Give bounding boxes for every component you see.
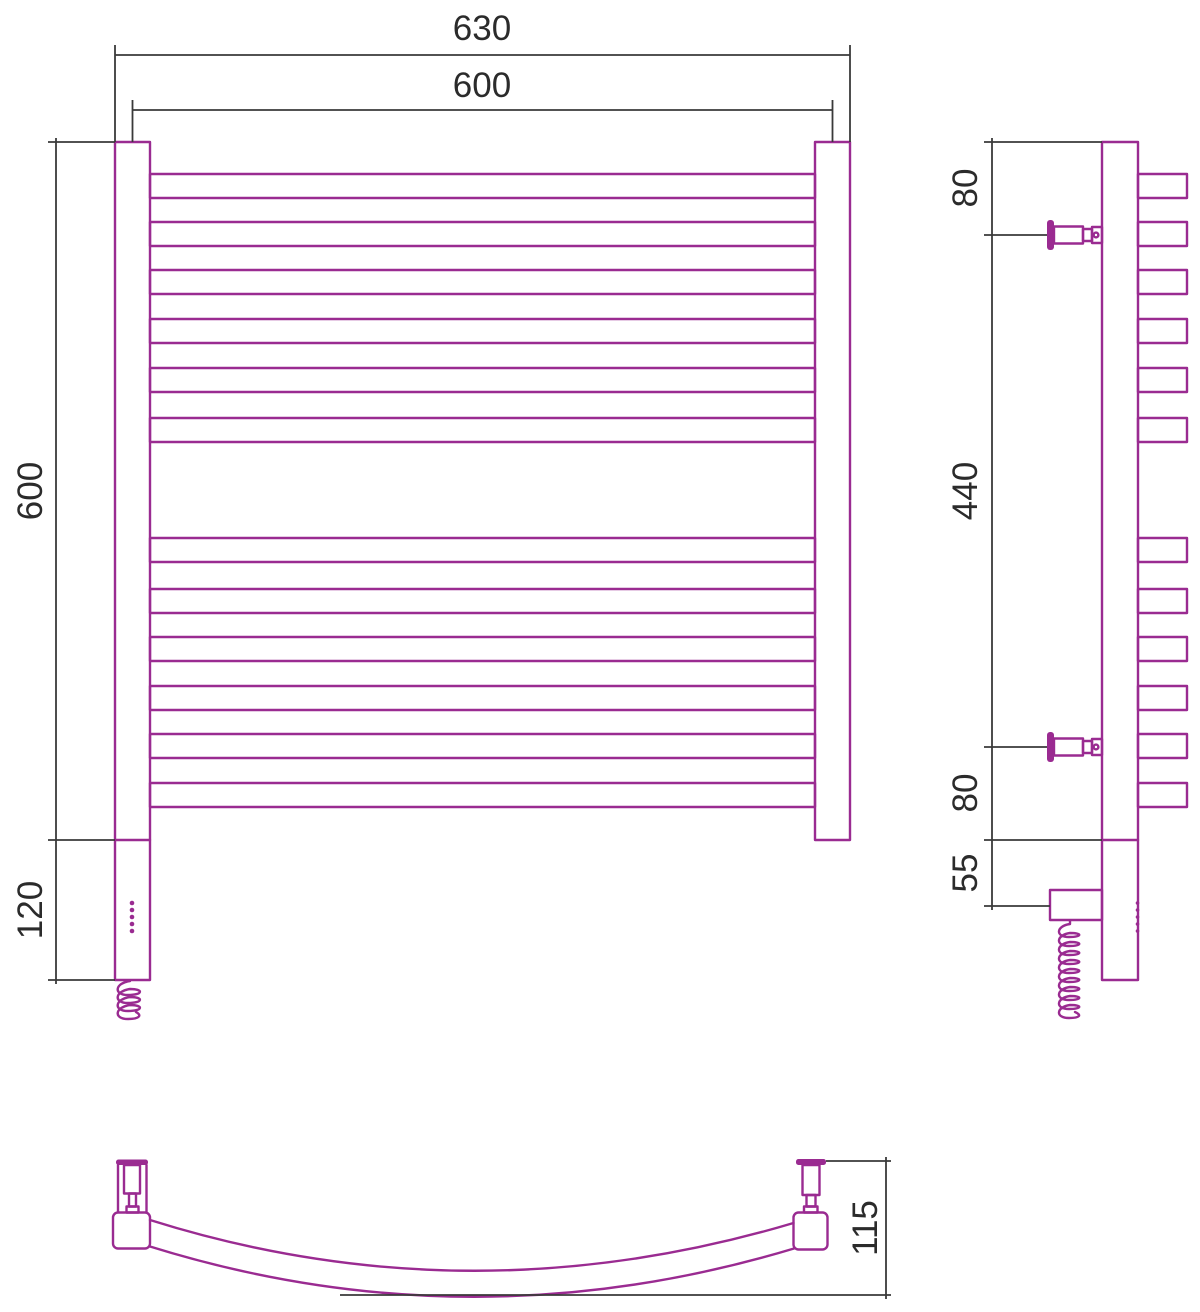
tube <box>150 418 815 442</box>
dim-label-bracket-span: 440 <box>946 462 985 520</box>
bottom-right-bracket <box>794 1159 828 1250</box>
towel-rail-drawing: 630 600 600 120 <box>0 0 1200 1312</box>
tube <box>150 368 815 392</box>
side-coil-cable <box>1059 921 1079 1018</box>
tube <box>150 270 815 294</box>
bottom-dimensions: 115 <box>340 1157 891 1299</box>
bottom-view: 115 <box>113 1157 891 1299</box>
tube-stub <box>1138 783 1187 807</box>
tube-stub <box>1138 222 1187 246</box>
dim-label-outer-width: 630 <box>453 9 511 48</box>
front-view: 630 600 600 120 <box>11 9 850 1019</box>
tube-stub <box>1138 319 1187 343</box>
tube-stub <box>1138 270 1187 294</box>
arc-tube-outer-edge <box>150 1220 794 1271</box>
side-bottom-bracket <box>1047 732 1102 762</box>
front-coil-cable <box>118 981 140 1019</box>
tube <box>150 686 815 710</box>
dim-label-heater-height: 120 <box>11 881 50 939</box>
side-post <box>1102 142 1138 980</box>
front-right-post <box>815 142 850 840</box>
tube-stub <box>1138 174 1187 198</box>
tube <box>150 734 815 758</box>
dim-label-top-offset: 80 <box>946 169 985 208</box>
tube-stub <box>1138 734 1187 758</box>
dim-label-center-width: 600 <box>453 66 511 105</box>
tube-stub <box>1138 637 1187 661</box>
technical-drawing-canvas: 630 600 600 120 <box>0 0 1200 1312</box>
tube <box>150 783 815 807</box>
tube <box>150 222 815 246</box>
tube-stub <box>1138 368 1187 392</box>
tube-stub <box>1138 589 1187 613</box>
front-left-post <box>115 142 150 980</box>
dim-label-cable-offset: 55 <box>946 854 985 893</box>
side-tube-stubs <box>1138 174 1187 807</box>
tube-stub <box>1138 538 1187 562</box>
dim-label-arc-depth: 115 <box>846 1200 885 1256</box>
side-power-box <box>1050 890 1102 920</box>
side-view: 80 440 80 55 <box>946 138 1187 1018</box>
bottom-left-bracket <box>113 1160 150 1249</box>
tube-stub <box>1138 686 1187 710</box>
front-dimensions: 630 600 600 120 <box>11 9 850 984</box>
dim-label-body-height: 600 <box>11 462 50 520</box>
tube <box>150 538 815 562</box>
front-tubes <box>150 174 815 807</box>
side-dimensions: 80 440 80 55 <box>946 138 1102 910</box>
tube <box>150 589 815 613</box>
side-top-bracket <box>1047 220 1102 250</box>
tube <box>150 174 815 198</box>
tube <box>150 637 815 661</box>
front-led-indicator <box>130 901 135 934</box>
tube-stub <box>1138 418 1187 442</box>
dim-label-bottom-offset: 80 <box>946 774 985 813</box>
tube <box>150 319 815 343</box>
